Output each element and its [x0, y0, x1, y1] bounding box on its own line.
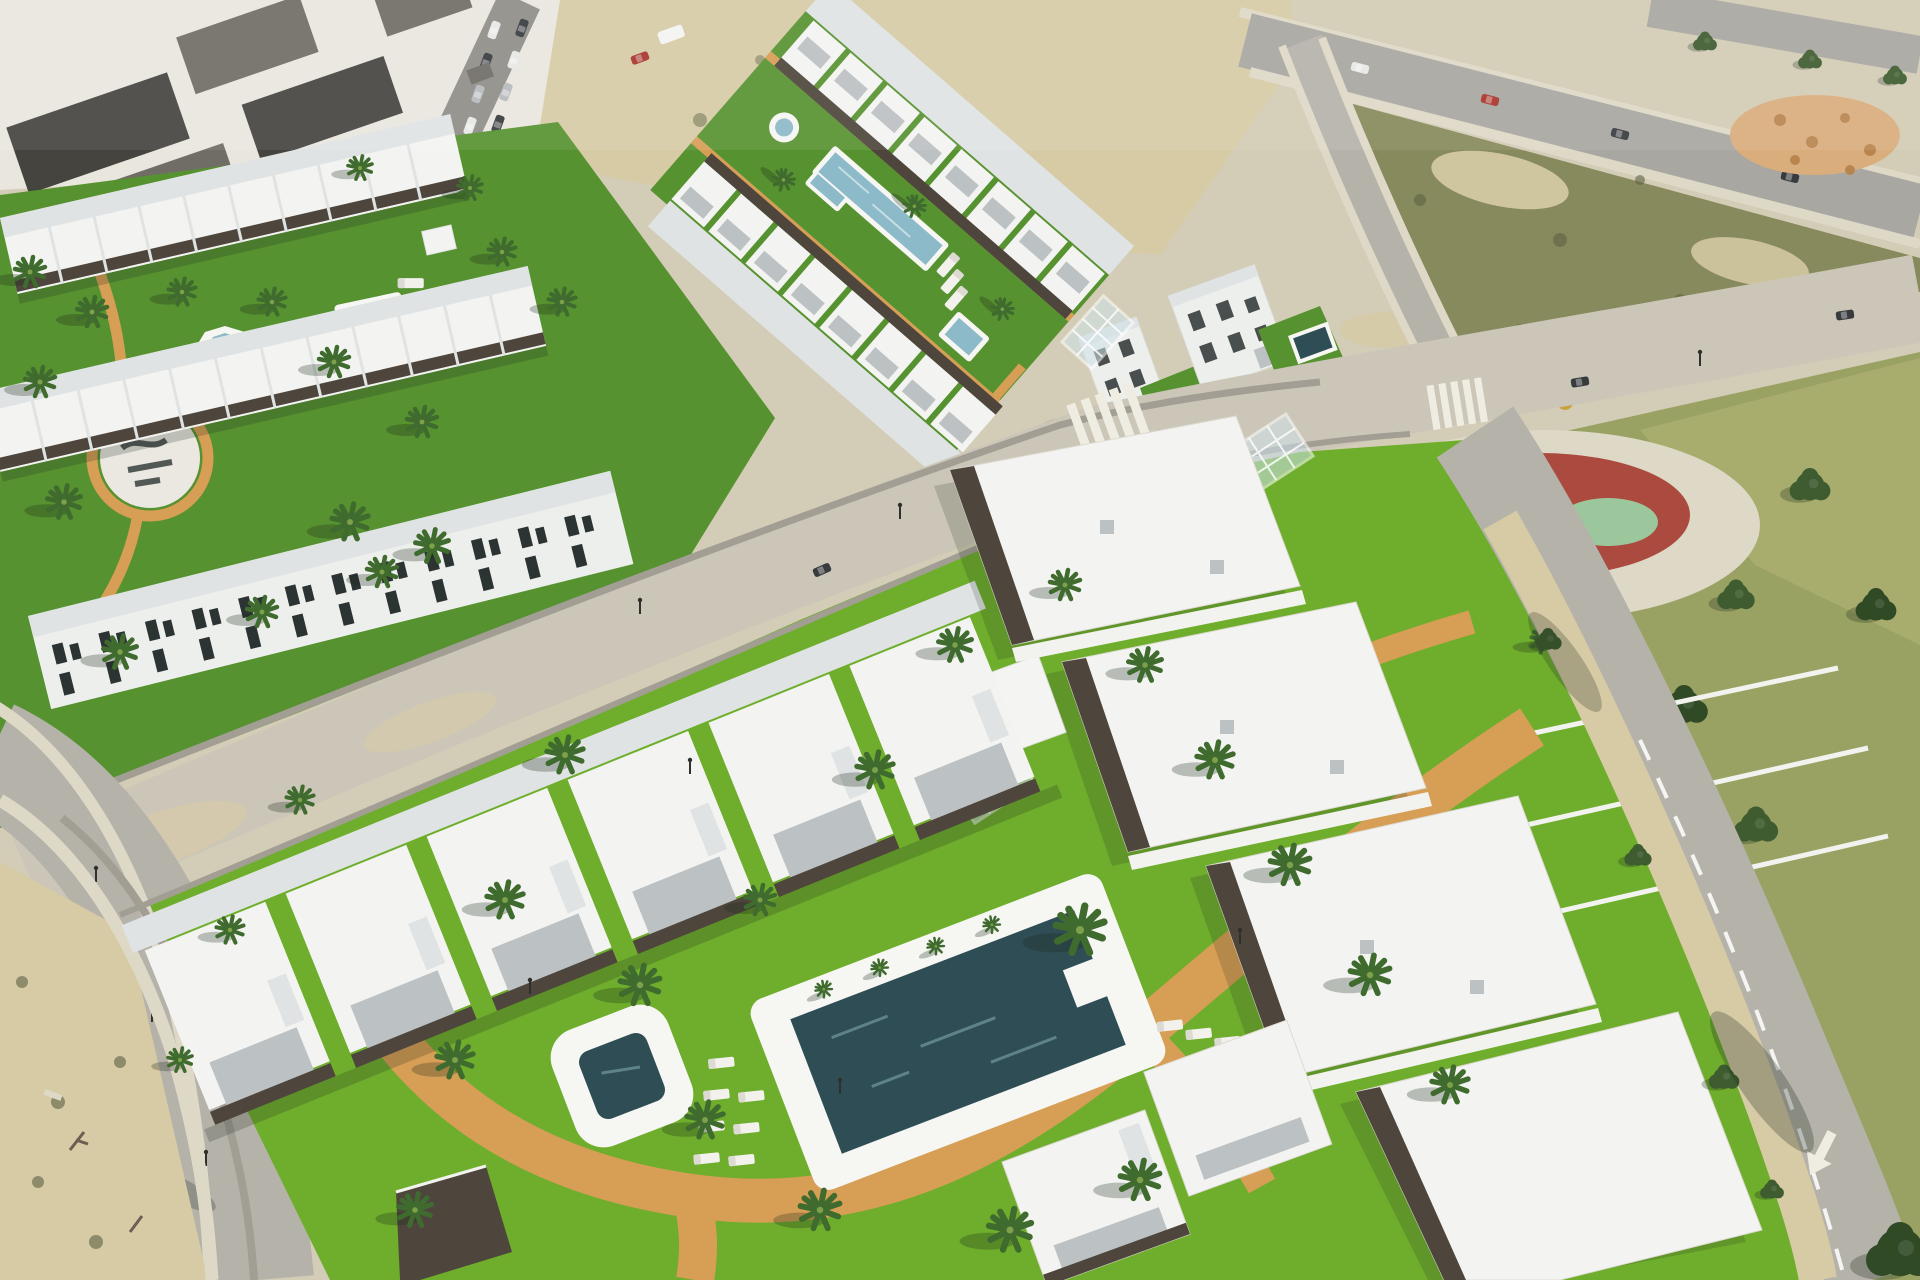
aerial-render-stage [0, 0, 1920, 1280]
path-branch [692, 1196, 698, 1280]
haze-overlay [0, 0, 1920, 150]
aerial-scene [0, 0, 1920, 1280]
sun-lounger [398, 278, 424, 288]
